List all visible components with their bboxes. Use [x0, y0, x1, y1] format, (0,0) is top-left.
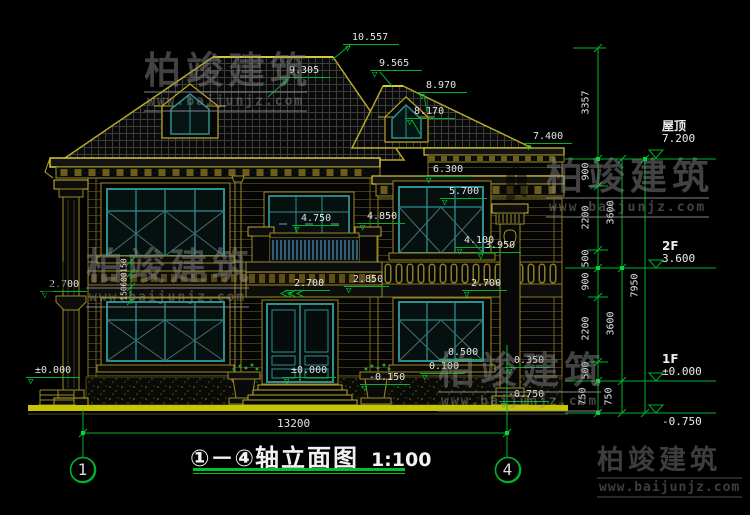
level-value: 7.200	[662, 133, 695, 145]
level-1f: 1F ±0.000	[662, 353, 702, 378]
level-value: -0.750	[662, 416, 702, 428]
title-underline-thin	[193, 473, 405, 474]
level-roof: 屋顶 7.200	[662, 120, 695, 145]
title-underline	[193, 468, 405, 471]
grid-bubble-4: 4	[495, 457, 520, 482]
company-url: www.baijunjz.com	[597, 477, 742, 498]
level-2f: 2F 3.600	[662, 240, 695, 265]
text-layer: 13200 屋顶 7.200 2F 3.600 1F ±0.000 -0.750…	[0, 0, 750, 515]
grid-bubble-1: 1	[70, 457, 95, 482]
level-ground: -0.750	[662, 416, 702, 428]
level-value: ±0.000	[662, 366, 702, 378]
company-name: 柏竣建筑	[597, 447, 742, 474]
level-value: 3.600	[662, 253, 695, 265]
grid-number: 1	[78, 460, 88, 479]
overall-width-dimension: 13200	[277, 417, 310, 430]
company-logo-icon	[538, 447, 590, 499]
company-logo-block: 柏竣建筑 www.baijunjz.com	[538, 447, 742, 499]
elevation-drawing-canvas: 10.557▽9.305▽9.565▽8.970▽8.170▽7.400▽6.3…	[0, 0, 750, 515]
grid-number: 4	[503, 460, 513, 479]
